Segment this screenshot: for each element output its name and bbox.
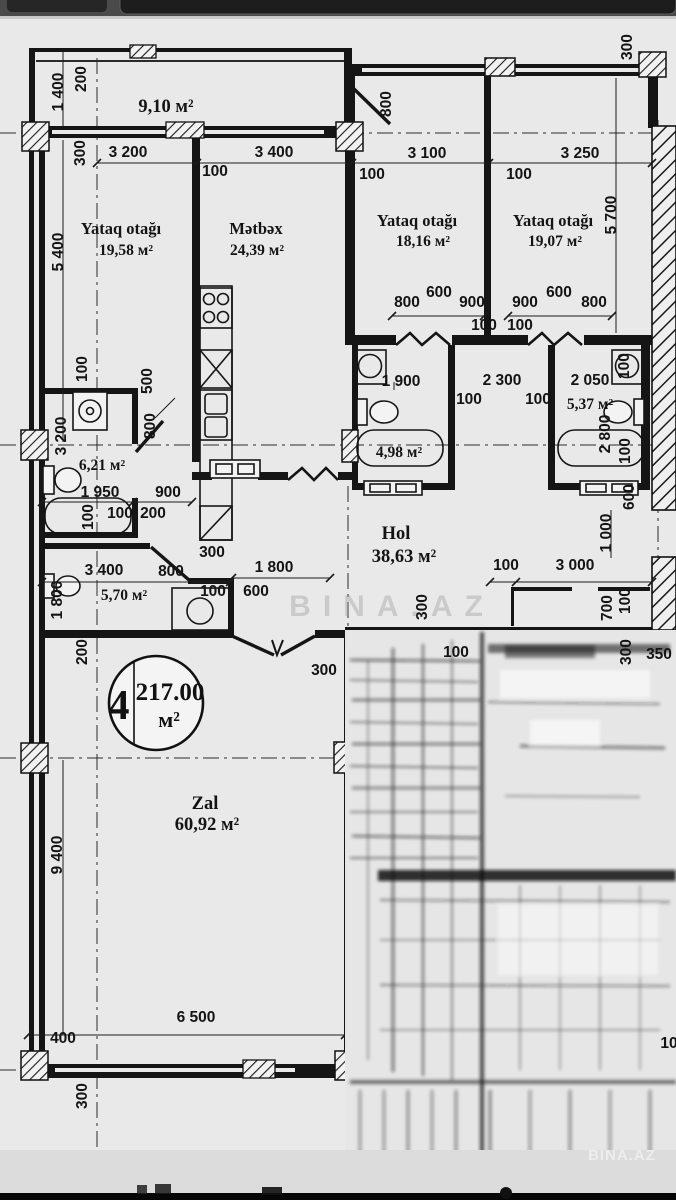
bath1-area: 6,21 м²	[79, 457, 126, 474]
dimension-label: 3 200	[109, 144, 148, 161]
svg-text:18,16 м²: 18,16 м²	[396, 233, 450, 250]
dimension-label: 300	[72, 140, 89, 166]
svg-text:24,39 м²: 24,39 м²	[230, 242, 284, 259]
dimension-label: 100	[443, 644, 469, 661]
wc-area: 5,70 м²	[101, 587, 148, 604]
dimension-label: 1 000	[598, 514, 615, 553]
dimension-label: 100	[107, 505, 133, 522]
svg-text:38,63 м²: 38,63 м²	[372, 547, 437, 567]
svg-text:60,92 м²: 60,92 м²	[175, 815, 240, 835]
dimension-label: 9 400	[49, 836, 66, 875]
dimension-label: 300	[619, 34, 636, 60]
shaft-wall-hatch	[652, 126, 676, 510]
dimension-label: 100	[506, 166, 532, 183]
dimension-label: 100	[616, 353, 633, 379]
dimension-label: 2 050	[571, 372, 610, 389]
unit-badge: 4 217.00 м²	[109, 656, 205, 750]
svg-text:Yataq otağı: Yataq otağı	[81, 219, 162, 238]
dimension-label: 3 100	[408, 145, 447, 162]
dimension-label: 100	[617, 438, 634, 464]
dimension-label: 100	[617, 588, 634, 614]
floor-plan: BINA.AZ	[0, 0, 676, 1200]
dimension-label: 600	[426, 284, 452, 301]
dimension-label: 3 400	[85, 562, 124, 579]
watermark-center: BINA.AZ	[289, 590, 495, 623]
unit-number: 4	[109, 683, 130, 729]
dimension-label: 100	[359, 166, 385, 183]
svg-text:19,07 м²: 19,07 м²	[528, 233, 582, 250]
dimension-label: 600	[546, 284, 572, 301]
dimension-label: 600	[243, 583, 269, 600]
dimension-label: 300	[199, 544, 225, 561]
svg-text:Yataq otağı: Yataq otağı	[377, 211, 458, 230]
dimension-label: 400	[50, 1030, 76, 1047]
dimension-label: 800	[158, 563, 184, 580]
dimension-label: 350	[646, 646, 672, 663]
dimension-label: 3 250	[561, 145, 600, 162]
dimension-label: 200	[74, 639, 91, 665]
bath3-area: 5,37 м²	[567, 396, 614, 413]
dimension-label: 600	[621, 484, 638, 510]
dimension-label: 100	[456, 391, 482, 408]
toilet-icon	[357, 399, 398, 425]
svg-text:Yataq otağı: Yataq otağı	[513, 211, 594, 230]
svg-text:Hol: Hol	[382, 524, 411, 544]
toilet-icon	[43, 466, 81, 494]
dimension-label: 6 500	[177, 1009, 216, 1026]
dimension-label: 300	[311, 662, 337, 679]
dimension-label: 3 400	[255, 144, 294, 161]
dimension-label: 800	[378, 91, 395, 117]
dimension-label: 800	[581, 294, 607, 311]
dimension-label: 2 300	[483, 372, 522, 389]
dimension-label: 100	[74, 356, 91, 382]
dimension-label: 800	[142, 413, 159, 439]
washing-machine-icon	[73, 392, 107, 430]
dimension-label: 2 800	[597, 415, 614, 454]
bath-door-icon	[364, 481, 422, 495]
kitchen-door-icon	[210, 460, 260, 478]
dimension-label: 200	[73, 66, 90, 92]
blurred-area	[345, 630, 676, 1192]
dimension-label: 1 950	[81, 484, 120, 501]
dimension-label: 100	[471, 317, 497, 334]
svg-text:Mətbəx: Mətbəx	[229, 219, 283, 238]
dimension-label: 100	[202, 163, 228, 180]
dimension-label: 900	[155, 484, 181, 501]
toolbar-tab-right[interactable]	[120, 0, 676, 14]
balcony-area: 9,10 м²	[138, 97, 194, 117]
dimension-label: 3 200	[53, 417, 70, 456]
dimension-label: 500	[139, 368, 156, 394]
dimension-label: 100	[80, 504, 97, 530]
svg-text:19,58 м²: 19,58 м²	[99, 242, 153, 259]
dimension-label: 200	[140, 505, 166, 522]
dimension-label: 700	[599, 595, 616, 621]
dimension-label: 800	[394, 294, 420, 311]
bottom-strip: BINA.AZ	[0, 1147, 676, 1200]
dimension-label: 10	[660, 1035, 676, 1052]
dimension-label: 5 700	[603, 196, 620, 235]
dimension-label: 5 400	[50, 233, 67, 272]
dimension-label: 300	[74, 1083, 91, 1109]
toolbar-tab-left[interactable]	[7, 0, 107, 12]
column-hatch	[22, 122, 49, 151]
watermark-corner: BINA.AZ	[588, 1147, 656, 1164]
dimension-label: 100	[493, 557, 519, 574]
unit-total-area: 217.00	[136, 679, 205, 706]
dimension-label: 300	[414, 594, 431, 620]
dimension-label: 1 400	[50, 73, 67, 112]
top-toolbar	[0, 0, 676, 19]
dimension-label: 900	[512, 294, 538, 311]
dimension-label: 1 800	[255, 559, 294, 576]
dimension-label: 3 000	[556, 557, 595, 574]
dimension-label: 100	[507, 317, 533, 334]
svg-text:Zal: Zal	[192, 794, 219, 814]
dimension-label: 1 800	[49, 581, 66, 620]
dimension-label: 100	[525, 391, 551, 408]
screenshot-root: BINA.AZ	[0, 0, 676, 1200]
dimension-label: 300	[618, 639, 635, 665]
dimension-label: 1 900	[382, 373, 421, 390]
unit-area-unit: м²	[158, 707, 180, 732]
dimension-label: 900	[459, 294, 485, 311]
bath2-area: 4,98 м²	[376, 444, 423, 461]
dimension-label: 100	[200, 583, 226, 600]
